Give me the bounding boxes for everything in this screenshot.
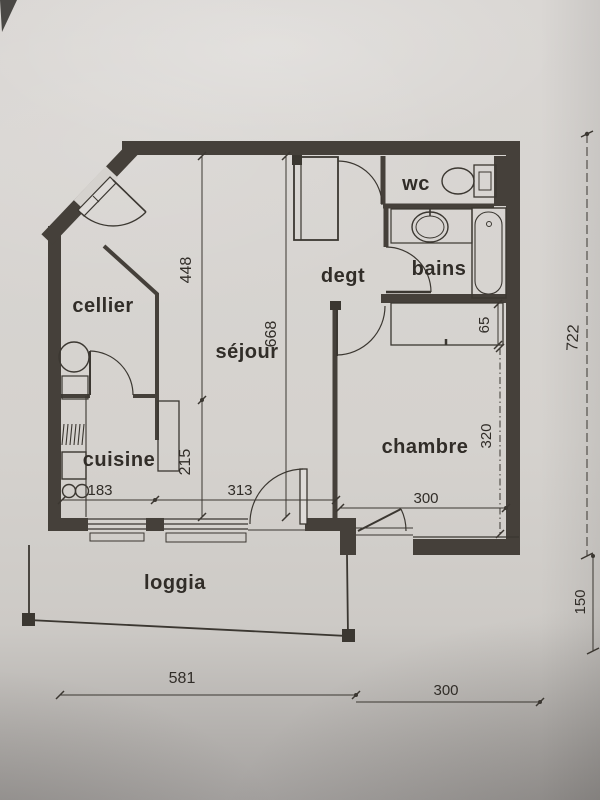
dim-581 xyxy=(56,691,360,699)
window-sill-sejour xyxy=(166,533,246,542)
wall-left xyxy=(48,226,61,531)
outer-walls xyxy=(48,141,520,555)
wall-bottom-left xyxy=(48,518,88,531)
windows xyxy=(88,517,248,542)
washbasin-icon xyxy=(391,209,472,243)
dim-722 xyxy=(581,131,593,559)
doors xyxy=(90,161,519,537)
room-label-chambre: chambre xyxy=(382,436,469,458)
wall-chambre-bottom xyxy=(413,539,520,555)
dim-label-668: 668 xyxy=(263,321,280,348)
dim-label-448: 448 xyxy=(178,257,195,284)
dim-300-bottom xyxy=(356,698,544,706)
wall-right xyxy=(506,141,520,555)
degt-closet xyxy=(294,157,338,240)
dim-label-150: 150 xyxy=(572,589,589,614)
dim-label-215: 215 xyxy=(177,449,194,476)
dim-label-65: 65 xyxy=(476,317,493,334)
dim-448-215 xyxy=(198,152,206,521)
wall-top xyxy=(122,141,520,155)
loggia-door-arc xyxy=(250,469,303,524)
floor-plan: cellier cuisine séjour degt wc bains cha… xyxy=(0,0,600,800)
dim-65 xyxy=(494,300,502,349)
dim-320 xyxy=(496,344,504,538)
loggia-post-right xyxy=(342,629,355,642)
entrance-door-leaf xyxy=(113,180,146,212)
room-label-cellier: cellier xyxy=(72,295,133,317)
dim-label-581: 581 xyxy=(169,670,196,687)
room-label-cuisine: cuisine xyxy=(83,449,155,471)
room-label-wc: wc xyxy=(401,173,430,195)
wall-bottom-pier-link xyxy=(340,525,356,555)
dim-label-313: 313 xyxy=(227,482,252,499)
room-label-bains: bains xyxy=(412,258,467,280)
dim-668 xyxy=(282,152,290,521)
room-label-loggia: loggia xyxy=(144,572,206,594)
room-label-degt: degt xyxy=(321,265,365,287)
dim-label-300-chambre: 300 xyxy=(413,490,438,507)
dim-label-320: 320 xyxy=(478,423,495,448)
floor-plan-photo: cellier cuisine séjour degt wc bains cha… xyxy=(0,0,600,800)
hob-icon xyxy=(63,485,89,498)
wall-bottom-pier-small xyxy=(146,518,164,531)
dim-label-183: 183 xyxy=(87,482,112,499)
entrance-door xyxy=(78,172,146,226)
drainer-icon xyxy=(62,424,84,445)
cellier-door-arc xyxy=(90,351,133,395)
wall-cap-partition xyxy=(330,301,341,310)
window-sill-cuisine xyxy=(90,533,144,541)
dim-label-300-bottom: 300 xyxy=(433,682,458,699)
loggia-post-left xyxy=(22,613,35,626)
toilet-icon xyxy=(442,165,496,197)
wc-door-arc xyxy=(338,161,382,205)
wall-cellier-east xyxy=(104,246,157,440)
chambre-door-arc xyxy=(337,306,385,355)
water-heater-icon xyxy=(59,342,89,399)
bathtub-icon xyxy=(472,208,506,298)
dim-label-722: 722 xyxy=(564,324,582,352)
entrance-door-arc xyxy=(81,212,146,226)
loggia-door-leaf xyxy=(300,469,307,524)
photo-corner-smudge xyxy=(0,0,17,32)
